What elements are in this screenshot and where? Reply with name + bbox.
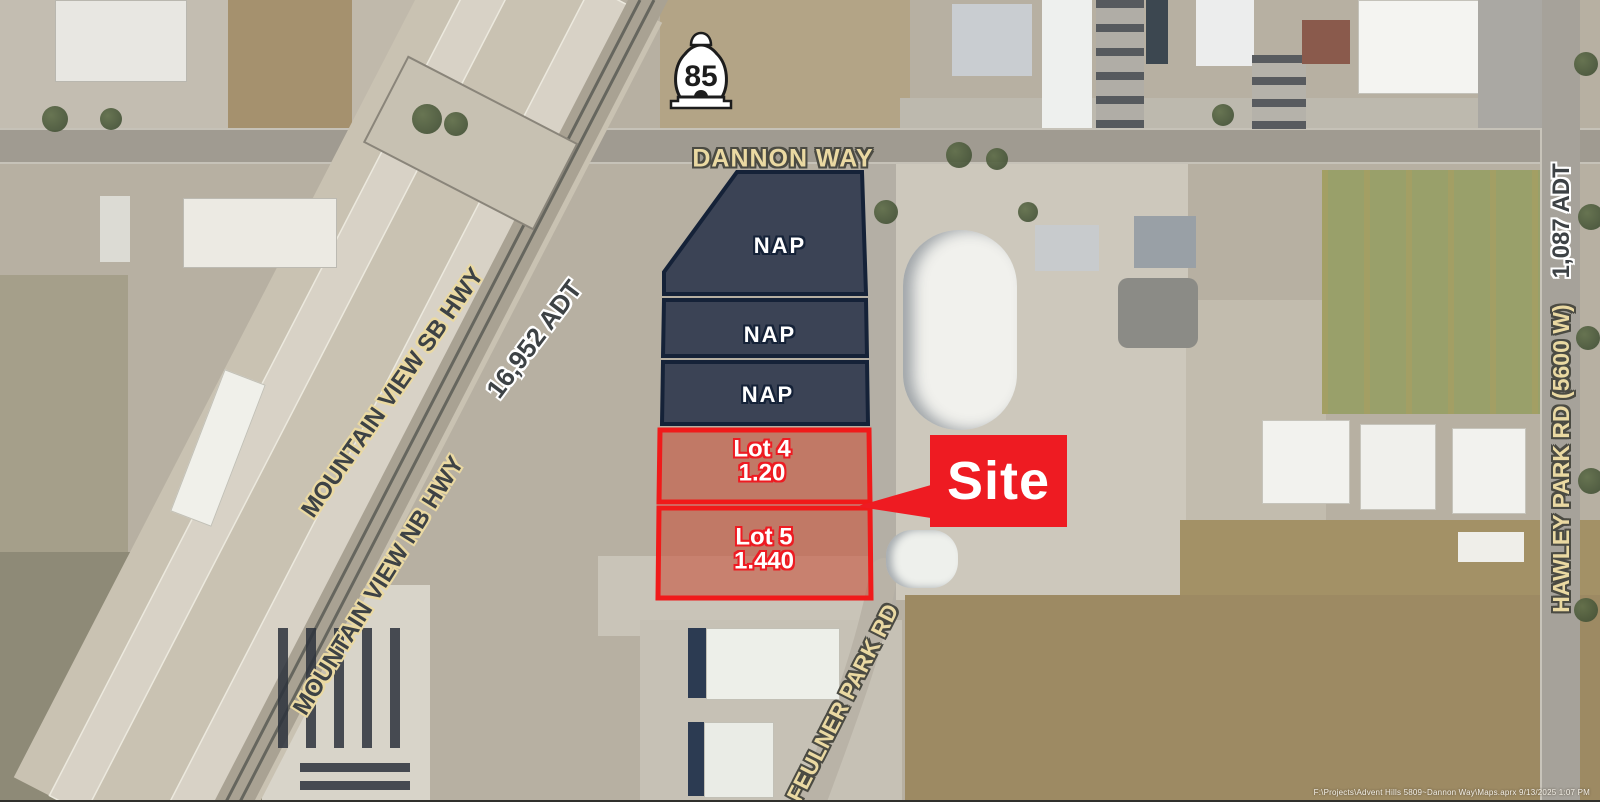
shield-cap (691, 33, 711, 45)
nap-label-2: NAP (744, 324, 796, 346)
footer-file-path: F:\Projects\Advent Hills 5809~Dannon Way… (1314, 788, 1590, 797)
lot-4-label: Lot 4 1.20 (733, 438, 790, 487)
lot-4-name: Lot 4 (733, 438, 790, 462)
site-callout: Site (930, 435, 1067, 527)
parcel-layer (0, 0, 1600, 800)
traffic-count-hawley-park: 1,087 ADT (1550, 163, 1574, 278)
lot-5-name: Lot 5 (734, 526, 794, 550)
lot-4-acreage: 1.20 (733, 462, 790, 486)
street-label-hawley-park-rd: HAWLEY PARK RD (5600 W) (1550, 304, 1573, 612)
route-85-shield-icon: 85 (660, 28, 742, 116)
hawley-park-label-group: HAWLEY PARK RD (5600 W) 1,087 ADT (1550, 163, 1574, 613)
lot-5-acreage: 1.440 (734, 550, 794, 574)
route-number: 85 (684, 60, 717, 93)
street-label-dannon-way: DANNON WAY (692, 147, 873, 172)
lot-5-label: Lot 5 1.440 (734, 526, 794, 575)
aerial-site-map: NAP NAP NAP Lot 4 1.20 Lot 5 1.440 Site … (0, 0, 1600, 802)
nap-label-1: NAP (754, 235, 806, 257)
site-callout-text: Site (947, 450, 1050, 512)
shield-base (671, 97, 731, 108)
nap-label-3: NAP (742, 384, 794, 406)
